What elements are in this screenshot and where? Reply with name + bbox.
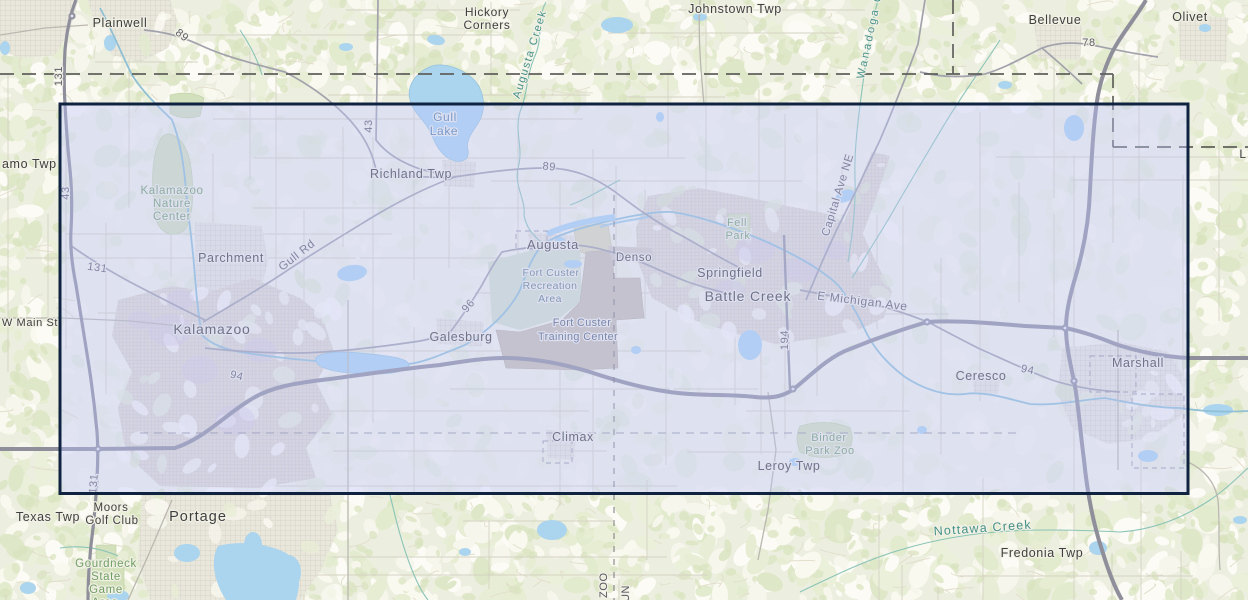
svg-text:Game: Game [89,584,123,596]
svg-text:W Main St: W Main St [2,317,58,329]
svg-text:78: 78 [1082,37,1095,49]
svg-text:Golf Club: Golf Club [85,515,138,527]
svg-text:Fredonia Twp: Fredonia Twp [1001,546,1084,560]
svg-text:Olivet: Olivet [1172,10,1208,24]
svg-text:State: State [91,571,121,583]
svg-text:Plainwell: Plainwell [93,16,148,30]
svg-text:Johnstown Twp: Johnstown Twp [688,2,782,16]
svg-text:Gourdneck: Gourdneck [75,558,137,570]
svg-text:ZOO: ZOO [598,572,610,598]
svg-text:Bellevue: Bellevue [1029,13,1082,27]
svg-text:Moors: Moors [94,502,129,514]
svg-text:Corners: Corners [464,18,511,32]
svg-text:UN: UN [620,585,632,600]
svg-text:Texas Twp: Texas Twp [16,510,80,524]
svg-text:Hickory: Hickory [465,5,509,19]
svg-text:amo Twp: amo Twp [2,157,57,171]
svg-text:131: 131 [53,66,65,86]
svg-text:L: L [1239,147,1246,161]
svg-text:Portage: Portage [169,509,227,525]
